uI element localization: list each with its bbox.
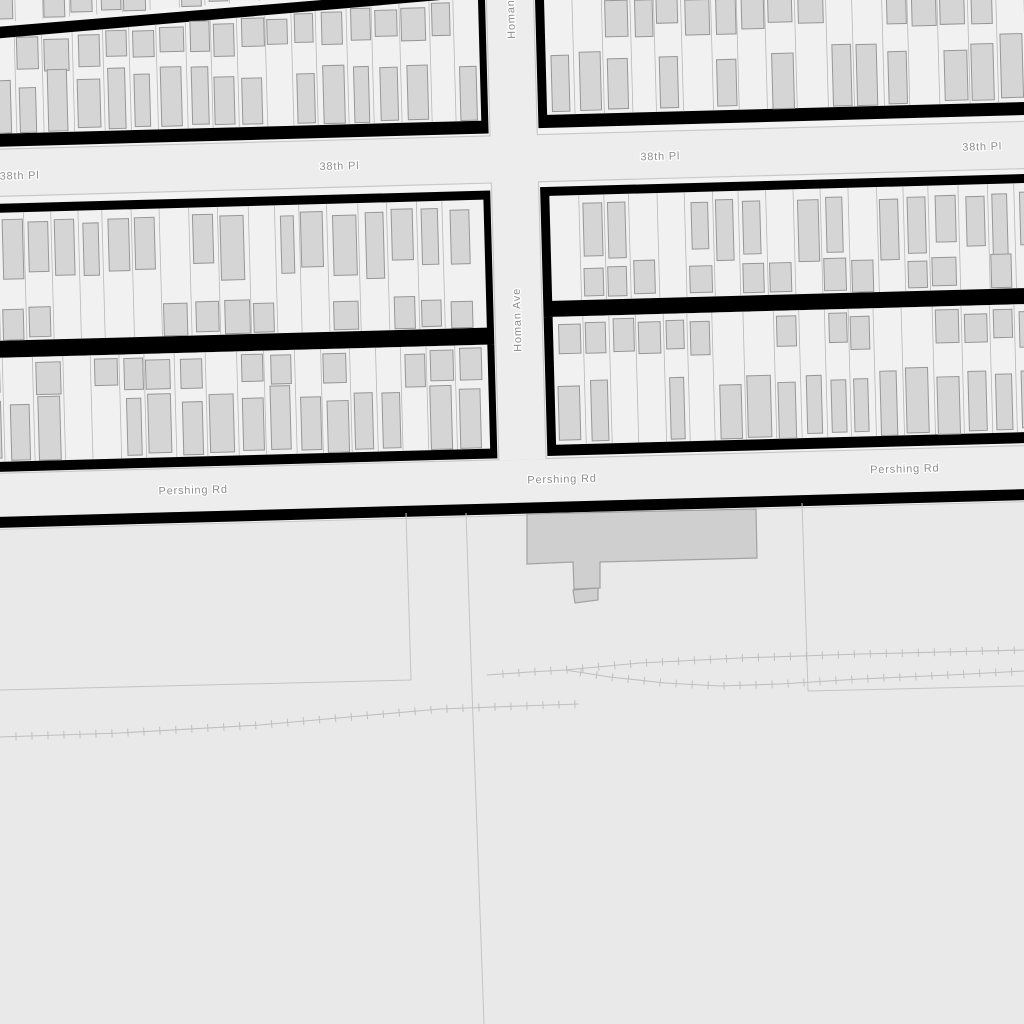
building-footprint [43,0,64,17]
building-footprint [190,21,210,52]
building-footprint [3,309,24,340]
building-footprint [124,358,144,390]
building-footprint [332,215,357,276]
building-footprint [382,393,401,449]
building-footprint [375,10,398,37]
building-footprint [691,202,709,249]
street-label: Pershing Rd [158,484,228,498]
building-footprint [54,219,75,275]
building-footprint [267,19,288,44]
building-footprint [354,393,374,450]
building-footprint [28,221,49,271]
building-footprint [634,260,656,294]
building-footprint [685,0,710,35]
industrial-building-annex-footprint [573,588,598,603]
building-footprint [160,67,182,127]
building-footprint [451,301,473,328]
building-footprint [459,389,481,449]
building-footprint [253,303,274,332]
building-footprint [391,209,413,260]
building-footprint [19,88,37,133]
building-footprint [164,303,188,336]
building-footprint [242,78,263,124]
map-canvas[interactable]: 38th Pl38th Pl38th Pl38th PlPershing RdP… [0,0,1024,1024]
building-footprint [77,79,101,128]
building-footprint [270,386,291,450]
building-footprint [214,77,235,125]
building-footprint [241,354,263,381]
street-label: 38th Pl [962,141,1002,154]
street-label: Homan Ave [511,288,525,352]
building-footprint [613,318,634,351]
building-footprint [271,355,292,384]
building-footprint [83,223,100,276]
building-footprint [741,0,764,29]
building-footprint [690,266,713,293]
building-footprint [879,199,899,260]
building-footprint [798,0,824,23]
building-footprint [716,0,737,34]
building-footprint [776,316,796,347]
building-footprint [772,53,795,109]
building-footprint [407,65,429,120]
building-footprint [908,261,928,288]
building-footprint [747,375,772,437]
building-footprint [126,398,142,455]
building-footprint [797,200,819,262]
building-footprint [450,210,470,264]
building-footprint [241,18,264,47]
building-footprint [856,44,878,106]
building-footprint [334,301,359,330]
building-footprint [886,0,906,24]
building-footprint [405,354,426,387]
building-footprint [770,262,792,291]
building-footprint [394,296,415,328]
building-footprint [824,258,847,291]
city-block [544,302,1024,456]
building-footprint [300,212,323,268]
building-footprint [742,201,761,254]
street-label: 38th Pl [640,150,680,163]
building-footprint [192,214,213,263]
building-footprint [365,212,385,278]
building-footprint [133,31,155,58]
map-svg[interactable]: 38th Pl38th Pl38th Pl38th PlPershing RdP… [0,0,1024,1024]
building-footprint [964,314,987,343]
building-footprint [935,195,956,242]
street-label: Pershing Rd [527,473,597,487]
building-footprint [44,39,69,71]
city-block [0,0,489,149]
building-footprint [36,362,61,395]
building-footprint [78,35,100,67]
building-footprint [607,58,628,109]
building-footprint [209,394,235,453]
building-footprint [767,0,792,22]
building-footprint [608,266,627,296]
building-footprint [666,320,684,349]
building-footprint [968,371,987,431]
building-footprint [715,199,734,260]
building-footprint [605,0,628,37]
building-footprint [995,374,1013,430]
building-footprint [430,350,454,381]
building-footprint [353,66,369,122]
building-footprint [831,380,847,433]
building-footprint [421,209,439,265]
building-footprint [181,0,201,7]
building-footprint [220,215,245,280]
building-footprint [717,59,738,106]
building-footprint [852,260,874,292]
building-footprint [191,67,209,125]
building-footprint [101,0,121,10]
building-footprint [656,0,678,23]
building-footprint [944,50,968,100]
building-footprint [558,386,581,440]
building-footprint [659,56,678,107]
city-block [540,172,1024,317]
street-label: Pershing Rd [870,462,940,476]
city-block [0,190,494,360]
building-footprint [607,202,626,258]
building-footprint [180,359,202,389]
building-footprint [323,353,347,383]
building-footprint [1000,34,1024,98]
building-footprint [10,404,30,460]
building-footprint [401,8,426,41]
building-footprint [971,0,992,24]
building-footprint [301,397,322,450]
street-label: Homan Ave [504,0,518,39]
building-footprint [583,203,603,256]
building-footprint [778,382,797,438]
building-footprint [971,44,995,101]
building-footprint [937,376,961,434]
building-footprint [935,309,959,343]
building-footprint [888,51,908,104]
building-footprint [991,254,1012,288]
building-footprint [0,80,12,133]
building-footprint [160,27,184,52]
building-footprint [148,394,172,453]
building-footprint [106,30,127,56]
building-footprint [182,402,203,455]
building-footprint [280,216,294,274]
city-block [0,344,497,474]
building-footprint [431,3,450,36]
building-footprint [145,360,170,390]
building-footprint [559,324,581,354]
building-footprint [850,316,870,349]
building-footprint [294,14,313,43]
building-footprint [94,359,117,386]
building-footprint [225,300,251,334]
building-footprint [47,69,68,131]
building-footprint [38,396,62,460]
building-footprint [880,371,898,436]
building-footprint [123,0,146,11]
building-footprint [939,0,964,24]
building-footprint [242,398,264,451]
building-footprint [829,313,848,343]
building-footprint [108,68,127,129]
building-footprint [584,268,604,296]
building-footprint [460,66,478,120]
building-footprint [992,194,1008,255]
building-footprint [832,44,852,106]
city-block [533,0,1024,128]
building-footprint [826,197,844,252]
building-footprint [16,37,38,69]
building-footprint [321,12,342,45]
building-footprint [327,401,350,453]
building-footprint [932,257,957,286]
building-footprint [2,219,24,279]
building-footprint [460,348,482,380]
rotated-map-layer: 38th Pl38th Pl38th Pl38th PlPershing RdP… [0,0,1024,533]
building-footprint [720,385,743,439]
building-footprint [579,52,601,111]
building-footprint [806,375,822,433]
building-footprint [134,74,151,127]
building-footprint [108,219,130,272]
street-label: 38th Pl [0,170,40,183]
building-footprint [350,8,370,40]
building-footprint [208,0,227,1]
building-footprint [70,0,92,12]
building-footprint [907,197,926,254]
building-footprint [993,309,1012,338]
building-footprint [430,385,453,449]
building-footprint [323,65,346,123]
building-footprint [551,55,570,112]
building-footprint [690,321,710,355]
building-footprint [634,0,653,37]
building-footprint [196,301,220,332]
building-footprint [585,322,606,353]
building-footprint [29,307,51,337]
building-footprint [854,379,870,432]
building-footprint [0,0,13,19]
building-footprint [905,367,929,433]
building-footprint [966,196,986,246]
building-footprint [670,377,686,439]
building-footprint [297,74,316,124]
building-footprint [591,380,609,441]
building-footprint [421,300,441,327]
building-footprint [213,24,234,57]
building-footprint [134,217,155,269]
building-footprint [638,322,661,354]
building-footprint [911,0,936,26]
street-label: 38th Pl [319,160,359,173]
building-footprint [380,67,399,120]
building-footprint [1019,311,1024,347]
building-footprint [743,263,764,293]
